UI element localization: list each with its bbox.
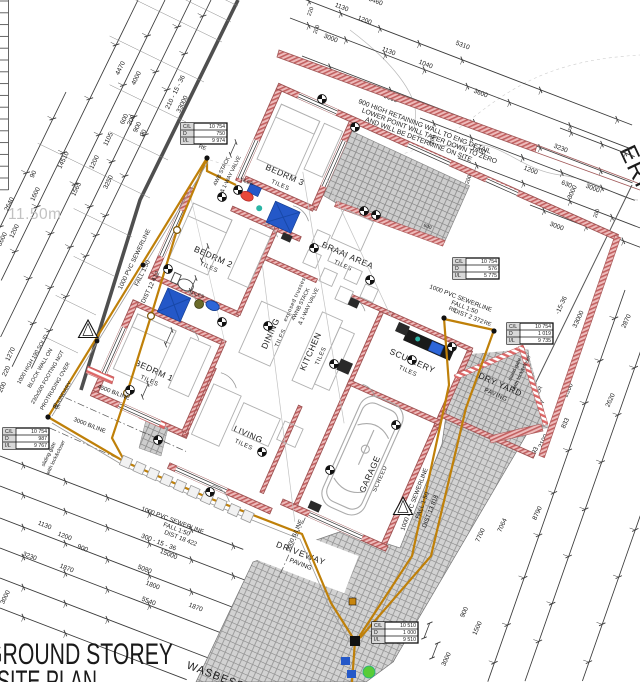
svg-text:1 019: 1 019: [538, 331, 551, 337]
svg-text:9 510: 9 510: [403, 637, 416, 643]
svg-text:D: D: [5, 436, 9, 442]
svg-text:C/L: C/L: [455, 259, 463, 265]
svg-text:C/L: C/L: [5, 429, 13, 435]
svg-text:5 775: 5 775: [484, 273, 497, 279]
svg-text:1 000: 1 000: [403, 630, 416, 636]
svg-text:D: D: [183, 131, 187, 137]
svg-text:10 754: 10 754: [535, 324, 551, 330]
svg-text:9 974: 9 974: [212, 138, 225, 144]
svg-text:I/L: I/L: [455, 273, 461, 279]
svg-text:I/L: I/L: [5, 443, 11, 449]
svg-text:10 754: 10 754: [31, 429, 47, 435]
svg-text:D: D: [455, 266, 459, 272]
svg-text:I/L: I/L: [509, 338, 515, 344]
svg-text:10 510: 10 510: [400, 623, 416, 629]
svg-text:11.50m: 11.50m: [8, 206, 62, 223]
svg-text:SITE PLAN: SITE PLAN: [0, 665, 97, 682]
svg-text:C/L: C/L: [509, 324, 517, 330]
svg-text:C/L: C/L: [374, 623, 382, 629]
svg-text:750: 750: [216, 131, 225, 137]
svg-text:C/L: C/L: [183, 124, 191, 130]
svg-text:987: 987: [38, 436, 47, 442]
svg-text:I/L: I/L: [374, 637, 380, 643]
svg-text:576: 576: [488, 266, 497, 272]
svg-text:9 767: 9 767: [34, 443, 47, 449]
svg-text:10 754: 10 754: [481, 259, 497, 265]
svg-text:10 754: 10 754: [209, 124, 225, 130]
svg-text:D: D: [374, 630, 378, 636]
svg-text:I/L: I/L: [183, 138, 189, 144]
svg-text:9 735: 9 735: [538, 338, 551, 344]
svg-text:D: D: [509, 331, 513, 337]
